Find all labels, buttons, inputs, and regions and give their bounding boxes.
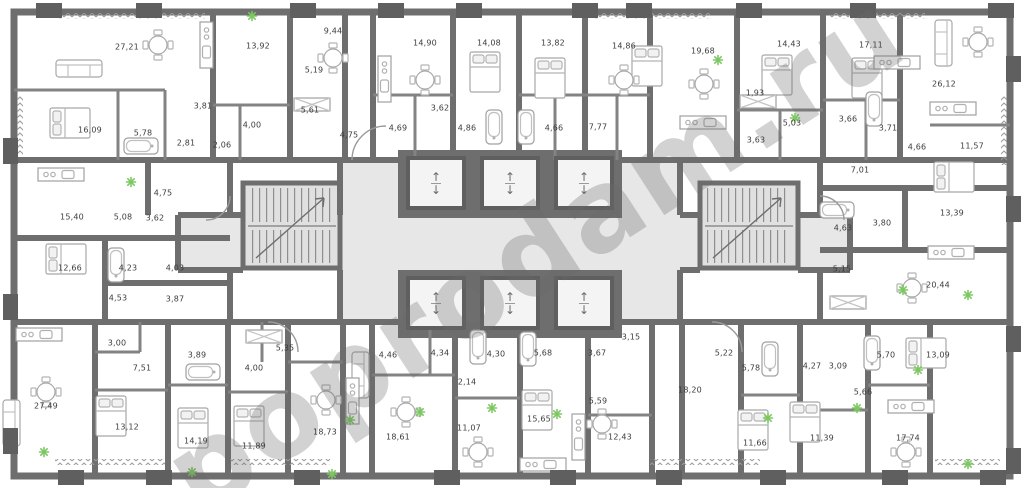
- elevator-cabin: ↑↓: [480, 156, 540, 210]
- room-area-label: 3,00: [108, 339, 127, 348]
- room-area-label: 18,73: [313, 428, 337, 437]
- room-area-label: 2,06: [213, 141, 232, 150]
- room-area-label: 11,89: [242, 442, 266, 451]
- room-area-label: 5,66: [854, 388, 873, 397]
- room-area-label: 7,01: [851, 166, 870, 175]
- room-area-label: 4,34: [431, 349, 450, 358]
- room-area-label: 7,77: [589, 123, 608, 132]
- room-area-label: 26,12: [932, 80, 956, 89]
- room-area-label: 14,08: [477, 39, 501, 48]
- elevator-up-arrow-icon: ↑: [505, 292, 515, 302]
- room-area-label: 4,53: [109, 294, 128, 303]
- room-area-label: 12,43: [608, 433, 632, 442]
- room-area-label: 3,89: [188, 351, 207, 360]
- room-area-label: 14,19: [184, 437, 208, 446]
- room-area-label: 5,68: [534, 349, 553, 358]
- room-area-label: 3,66: [839, 115, 858, 124]
- room-area-label: 3,15: [622, 333, 641, 342]
- room-area-label: 3,63: [747, 136, 766, 145]
- room-area-label: 2,14: [458, 378, 477, 387]
- room-area-label: 20,44: [926, 281, 950, 290]
- room-area-label: 4,46: [379, 351, 398, 360]
- room-area-label: 4,00: [245, 364, 264, 373]
- room-area-label: 13,12: [115, 423, 139, 432]
- elevator-down-arrow-icon: ↓: [505, 183, 515, 195]
- room-area-label: 4,86: [458, 124, 477, 133]
- room-area-label: 3,67: [588, 349, 607, 358]
- room-area-label: 1,93: [746, 89, 765, 98]
- room-area-label: 14,43: [777, 40, 801, 49]
- elevator-cabin: ↑↓: [406, 156, 466, 210]
- room-area-label: 5,19: [305, 66, 324, 75]
- room-area-label: 13,92: [246, 42, 270, 51]
- room-area-label: 4,03: [166, 264, 185, 273]
- room-area-label: 4,27: [803, 362, 822, 371]
- room-area-label: 4,66: [545, 124, 564, 133]
- floor-plan: poprodam.ru 27,2113,929,4414,9014,0813,8…: [0, 0, 1024, 488]
- elevator-cabin: ↑↓: [406, 276, 466, 330]
- room-area-label: 4,30: [487, 350, 506, 359]
- room-area-label: 16,09: [78, 126, 102, 135]
- room-area-label: 13,39: [940, 209, 964, 218]
- room-area-label: 27,21: [115, 43, 139, 52]
- room-area-label: 18,61: [386, 433, 410, 442]
- elevator-cabin: ↑↓: [554, 156, 614, 210]
- room-area-label: 13,82: [541, 39, 565, 48]
- stairwell-left: [243, 183, 340, 268]
- room-area-label: 5,35: [276, 344, 295, 353]
- elevator-up-arrow-icon: ↑: [579, 292, 589, 302]
- room-area-label: 5,22: [715, 349, 734, 358]
- room-area-label: 27,49: [34, 402, 58, 411]
- room-area-label: 14,90: [413, 39, 437, 48]
- room-area-label: 3,62: [431, 104, 450, 113]
- room-area-label: 5,08: [114, 213, 133, 222]
- room-area-label: 15,40: [60, 213, 84, 222]
- elevator-up-arrow-icon: ↑: [505, 172, 515, 182]
- elevator-down-arrow-icon: ↓: [431, 303, 441, 315]
- room-area-label: 4,63: [834, 224, 853, 233]
- room-area-label: 5,15: [833, 265, 852, 274]
- room-area-label: 11,57: [960, 142, 984, 151]
- room-area-label: 4,75: [154, 189, 173, 198]
- room-area-label: 9,44: [324, 27, 343, 36]
- room-area-label: 11,66: [743, 439, 767, 448]
- elevator-up-arrow-icon: ↑: [431, 172, 441, 182]
- room-area-label: 11,39: [810, 434, 834, 443]
- elevator-cabin: ↑↓: [554, 276, 614, 330]
- room-area-label: 3,09: [829, 362, 848, 371]
- room-area-label: 3,81: [194, 102, 213, 111]
- room-area-label: 4,75: [340, 131, 359, 140]
- floor-plan-drawing: [0, 0, 1024, 488]
- elevator-down-arrow-icon: ↓: [579, 183, 589, 195]
- room-area-label: 4,66: [908, 143, 927, 152]
- room-area-label: 4,69: [389, 124, 408, 133]
- room-area-label: 5,03: [783, 119, 802, 128]
- room-area-label: 5,70: [877, 351, 896, 360]
- room-area-label: 3,71: [879, 124, 898, 133]
- room-area-label: 3,87: [166, 295, 185, 304]
- room-area-label: 5,59: [589, 397, 608, 406]
- room-area-label: 19,68: [691, 47, 715, 56]
- elevator-up-arrow-icon: ↑: [431, 292, 441, 302]
- elevator-down-arrow-icon: ↓: [505, 303, 515, 315]
- room-area-label: 18,20: [678, 386, 702, 395]
- room-area-label: 7,51: [133, 364, 152, 373]
- room-area-label: 4,00: [243, 121, 262, 130]
- room-area-label: 12,66: [58, 264, 82, 273]
- elevator-up-arrow-icon: ↑: [579, 172, 589, 182]
- stairwell-right: [700, 183, 798, 268]
- elevator-down-arrow-icon: ↓: [579, 303, 589, 315]
- room-area-label: 14,86: [612, 42, 636, 51]
- room-area-label: 13,09: [926, 351, 950, 360]
- room-area-label: 15,65: [527, 415, 551, 424]
- room-area-label: 5,78: [134, 129, 153, 138]
- room-area-label: 2,81: [177, 139, 196, 148]
- room-area-label: 3,62: [146, 214, 165, 223]
- elevator-down-arrow-icon: ↓: [431, 183, 441, 195]
- room-area-label: 3,80: [873, 219, 892, 228]
- room-area-label: 5,61: [301, 106, 320, 115]
- room-area-label: 11,07: [457, 424, 481, 433]
- elevator-cabin: ↑↓: [480, 276, 540, 330]
- room-area-label: 17,74: [896, 434, 920, 443]
- room-area-label: 4,23: [119, 264, 138, 273]
- room-area-label: 17,11: [859, 41, 883, 50]
- room-area-label: 5,78: [742, 364, 761, 373]
